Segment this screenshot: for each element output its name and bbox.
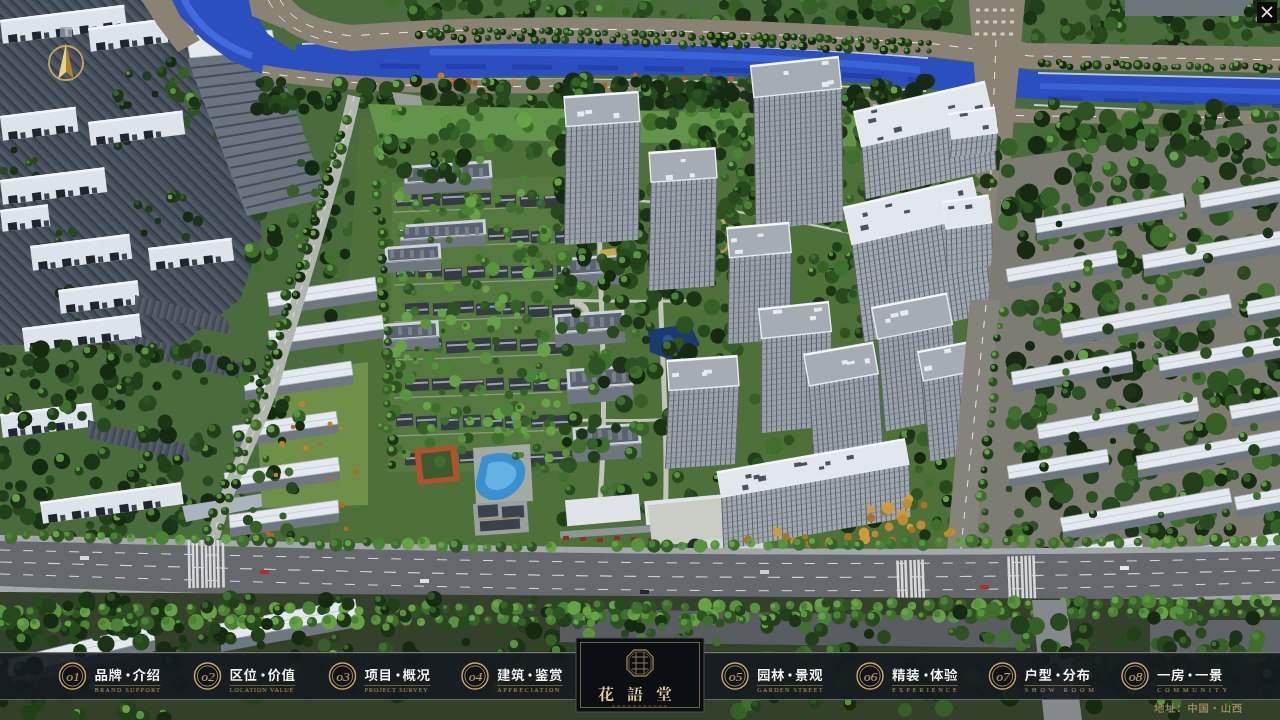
- svg-text:SHOW ROOM: SHOW ROOM: [1025, 686, 1098, 693]
- svg-text:LOCATION VALUE: LOCATION VALUE: [230, 686, 295, 693]
- svg-text:APPRECIATION: APPRECIATION: [497, 686, 561, 693]
- svg-text:o4: o4: [469, 669, 483, 684]
- svg-text:BRAND SUPPORT: BRAND SUPPORT: [95, 686, 162, 693]
- svg-text:GARDEN STREET: GARDEN STREET: [757, 686, 824, 693]
- svg-text:EXPERIENCE: EXPERIENCE: [892, 686, 959, 693]
- svg-text:o6: o6: [864, 669, 878, 684]
- svg-text:o3: o3: [336, 669, 350, 684]
- svg-text:o8: o8: [1129, 669, 1143, 684]
- svg-text:COMMUNITY: COMMUNITY: [1157, 686, 1231, 693]
- svg-text:o1: o1: [66, 669, 80, 684]
- svg-text:o5: o5: [729, 669, 743, 684]
- svg-text:o2: o2: [201, 669, 215, 684]
- svg-text:PROJECT SURVEY: PROJECT SURVEY: [365, 686, 429, 693]
- svg-text:o7: o7: [996, 669, 1011, 684]
